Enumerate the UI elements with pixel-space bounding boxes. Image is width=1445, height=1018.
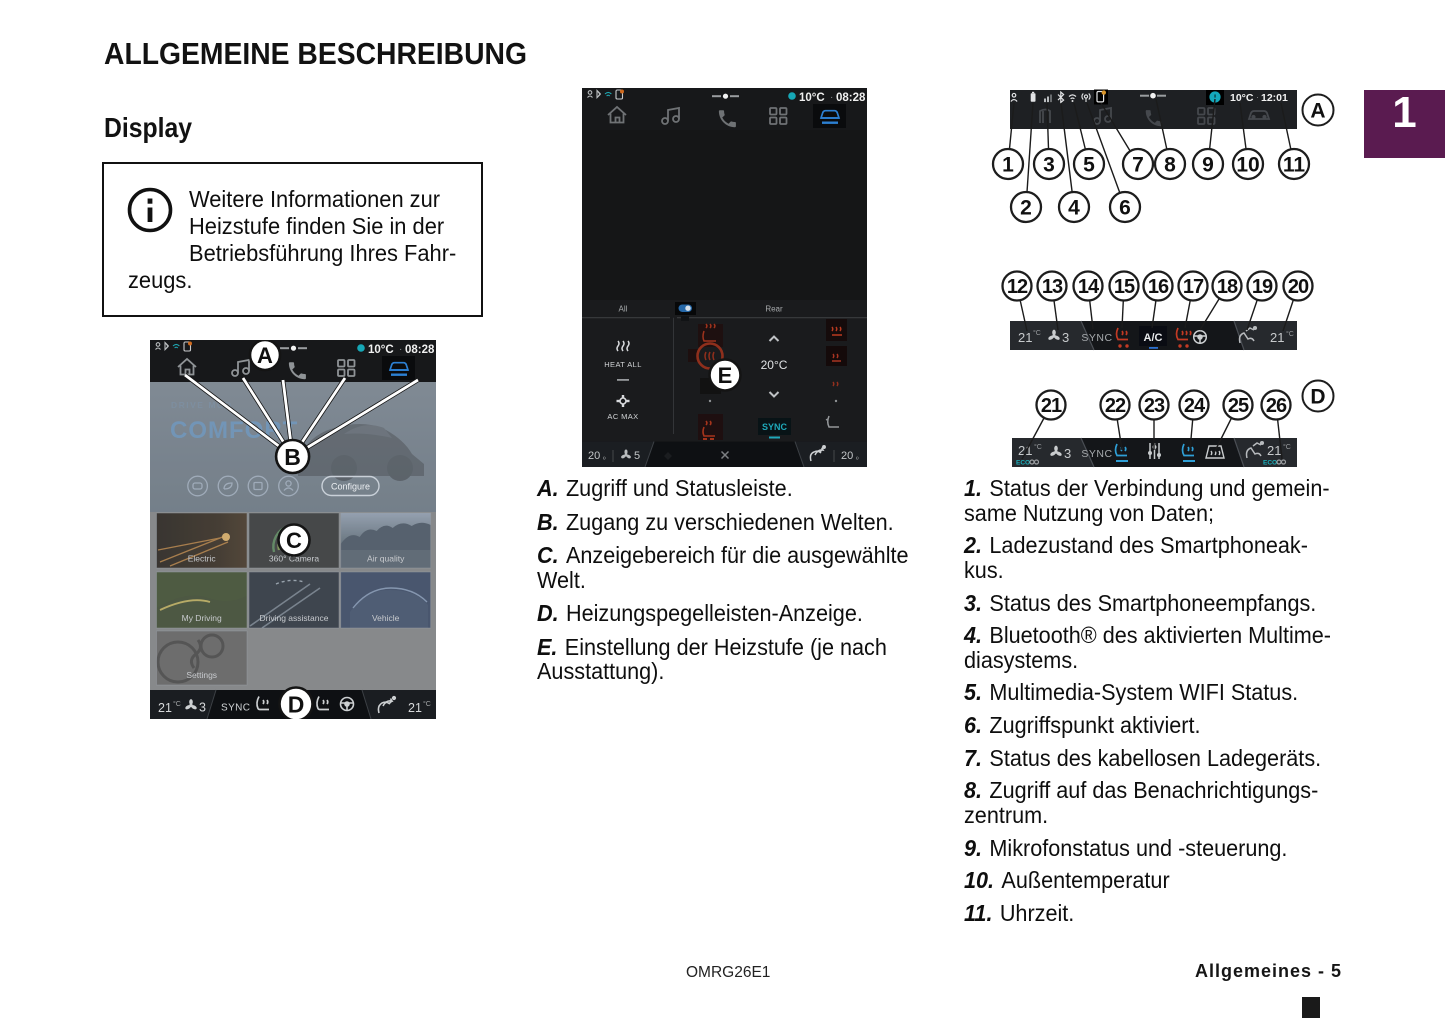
svg-text:3: 3 bbox=[1043, 154, 1055, 177]
svg-text:A: A bbox=[1310, 100, 1325, 123]
svg-text:8: 8 bbox=[1164, 154, 1176, 177]
svg-text:SYNC: SYNC bbox=[1081, 332, 1112, 344]
svg-text:D: D bbox=[1310, 386, 1325, 409]
svg-text:10°C: 10°C bbox=[799, 92, 825, 104]
svg-text:22: 22 bbox=[1105, 395, 1126, 417]
svg-text:25: 25 bbox=[1228, 395, 1249, 417]
svg-text:ECO: ECO bbox=[1263, 460, 1277, 467]
svg-text:7: 7 bbox=[1132, 154, 1144, 177]
svg-text:10°C: 10°C bbox=[1230, 92, 1254, 104]
svg-text:º: º bbox=[603, 457, 606, 464]
svg-text:HEAT ALL: HEAT ALL bbox=[604, 360, 642, 369]
svg-text:º: º bbox=[856, 457, 859, 464]
svg-text:20: 20 bbox=[1288, 276, 1309, 298]
svg-text:A/C: A/C bbox=[1144, 332, 1163, 344]
svg-text:Configure: Configure bbox=[331, 482, 370, 492]
svg-text:°C: °C bbox=[423, 700, 431, 708]
svg-text:°C: °C bbox=[1286, 330, 1294, 338]
svg-text:21: 21 bbox=[1018, 330, 1032, 345]
svg-text:3: 3 bbox=[199, 701, 206, 715]
svg-text:6: 6 bbox=[1119, 197, 1131, 220]
svg-text:ECO: ECO bbox=[1016, 460, 1030, 467]
svg-text:C: C bbox=[286, 528, 302, 553]
svg-text:10: 10 bbox=[1236, 154, 1259, 177]
svg-text:15: 15 bbox=[1114, 276, 1135, 298]
svg-text:08:28: 08:28 bbox=[836, 92, 866, 104]
svg-text:Rear: Rear bbox=[765, 305, 783, 314]
svg-text:B: B bbox=[284, 444, 301, 470]
svg-text:AC MAX: AC MAX bbox=[607, 412, 638, 421]
svg-text:20: 20 bbox=[841, 450, 853, 462]
svg-text:11: 11 bbox=[1283, 154, 1306, 177]
svg-text:°C: °C bbox=[1283, 443, 1291, 451]
svg-text:21: 21 bbox=[408, 701, 422, 715]
svg-text:·: · bbox=[399, 344, 402, 355]
svg-text:21: 21 bbox=[1041, 395, 1062, 417]
svg-text:°C: °C bbox=[1034, 443, 1042, 451]
svg-text:D: D bbox=[288, 692, 305, 718]
svg-text:·: · bbox=[1256, 92, 1259, 102]
svg-text:08:28: 08:28 bbox=[405, 344, 435, 356]
svg-text:5: 5 bbox=[1083, 154, 1095, 177]
svg-text:18: 18 bbox=[1217, 276, 1238, 298]
svg-text:2: 2 bbox=[1020, 197, 1032, 220]
svg-text:4: 4 bbox=[1068, 197, 1080, 220]
svg-text:10°C: 10°C bbox=[368, 344, 394, 356]
svg-text:24: 24 bbox=[1184, 395, 1206, 417]
svg-text:16: 16 bbox=[1148, 276, 1169, 298]
svg-text:21: 21 bbox=[158, 701, 172, 715]
svg-text:SYNC: SYNC bbox=[221, 703, 250, 714]
svg-text:COMFORT: COMFORT bbox=[170, 417, 298, 444]
svg-text:13: 13 bbox=[1042, 276, 1063, 298]
svg-text:·: · bbox=[830, 92, 833, 103]
svg-text:All: All bbox=[619, 305, 628, 314]
svg-text:SYNC: SYNC bbox=[762, 422, 788, 432]
svg-text:3: 3 bbox=[1064, 446, 1071, 461]
svg-text:5: 5 bbox=[634, 450, 640, 462]
svg-text:20°C: 20°C bbox=[761, 358, 788, 372]
svg-text:21: 21 bbox=[1267, 443, 1281, 458]
svg-text:°C: °C bbox=[1033, 329, 1041, 337]
svg-text:20: 20 bbox=[588, 450, 600, 462]
svg-text:3: 3 bbox=[1062, 330, 1069, 345]
svg-text:26: 26 bbox=[1266, 395, 1287, 417]
svg-text:21: 21 bbox=[1018, 443, 1032, 458]
svg-text:19: 19 bbox=[1252, 276, 1273, 298]
svg-text:17: 17 bbox=[1183, 276, 1204, 298]
svg-text:°C: °C bbox=[173, 700, 181, 708]
svg-text:1: 1 bbox=[1002, 154, 1014, 177]
svg-text:E: E bbox=[718, 363, 733, 388]
svg-text:12: 12 bbox=[1007, 276, 1028, 298]
svg-text:9: 9 bbox=[1202, 154, 1214, 177]
svg-text:14: 14 bbox=[1078, 276, 1100, 298]
svg-text:21: 21 bbox=[1270, 330, 1284, 345]
svg-text:12:01: 12:01 bbox=[1261, 92, 1288, 104]
svg-text:23: 23 bbox=[1144, 395, 1165, 417]
svg-text:A: A bbox=[257, 343, 273, 368]
svg-text:SYNC: SYNC bbox=[1081, 448, 1112, 460]
